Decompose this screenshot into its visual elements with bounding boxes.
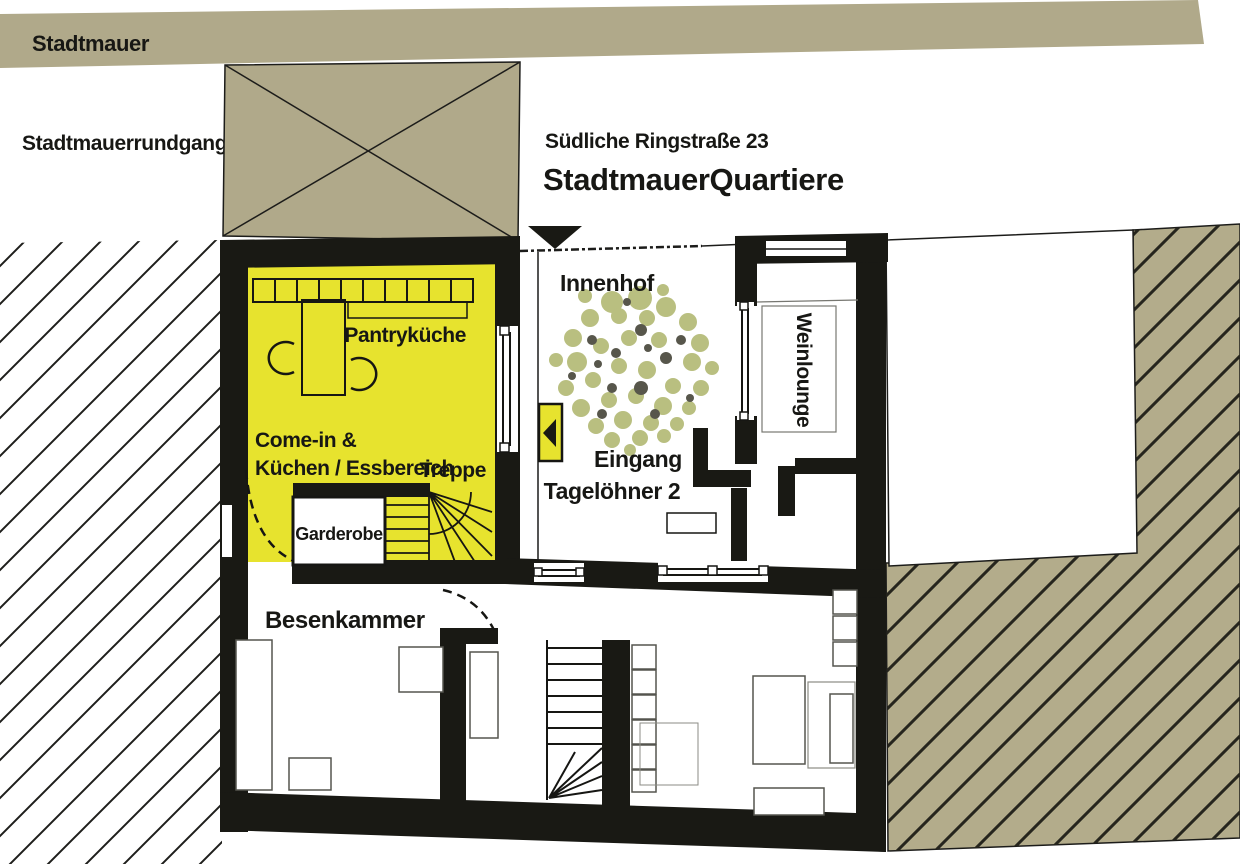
room-label-innenhof: Innenhof: [560, 270, 655, 296]
besenkammer-furniture: [236, 640, 443, 790]
room-label-treppe: Treppe: [420, 459, 486, 482]
crossed-terrace: [223, 62, 520, 241]
room-label-garderobe: Garderobe: [295, 524, 383, 544]
stadtmauer-band: [0, 0, 1204, 68]
straight-stair: [547, 640, 602, 800]
title-building: StadtmauerQuartiere: [543, 162, 844, 197]
bench: [667, 513, 716, 533]
door-swing-arc: [443, 590, 494, 630]
window-icon: [497, 326, 518, 452]
shelf-column: [632, 645, 698, 792]
door-marker-icon: [539, 404, 562, 461]
window-icon: [766, 241, 846, 256]
room-label-weinlounge: Weinlounge: [792, 313, 815, 428]
window-icon: [658, 561, 768, 582]
left-hatch-area: [0, 240, 222, 864]
window-icon: [737, 302, 754, 420]
west-wall-slot: [222, 505, 232, 557]
title-street: Südliche Ringstraße 23: [545, 130, 768, 153]
room-label-besenkammer: Besenkammer: [265, 607, 425, 634]
room-label-comein1: Come-in &: [255, 429, 357, 452]
walkway-label: Stadtmauerrundgang: [22, 132, 227, 155]
courtyard-fence-line: [520, 246, 702, 251]
stadtmauer-label: Stadtmauer: [32, 31, 150, 56]
window-icon: [534, 563, 584, 582]
room-label-pantry: Pantryküche: [344, 324, 466, 347]
stair-room-closet: [470, 652, 498, 738]
living-room-furniture: [753, 590, 857, 815]
room-label-eingang2: Tagelöhner 2: [544, 478, 681, 504]
neighbour-building: [886, 230, 1137, 566]
entrance-arrow-icon: [528, 226, 582, 249]
room-label-eingang1: Eingang: [594, 446, 682, 472]
floor-plan: Stadtmauer Stadtmauerrundgang Südliche R…: [0, 0, 1240, 864]
